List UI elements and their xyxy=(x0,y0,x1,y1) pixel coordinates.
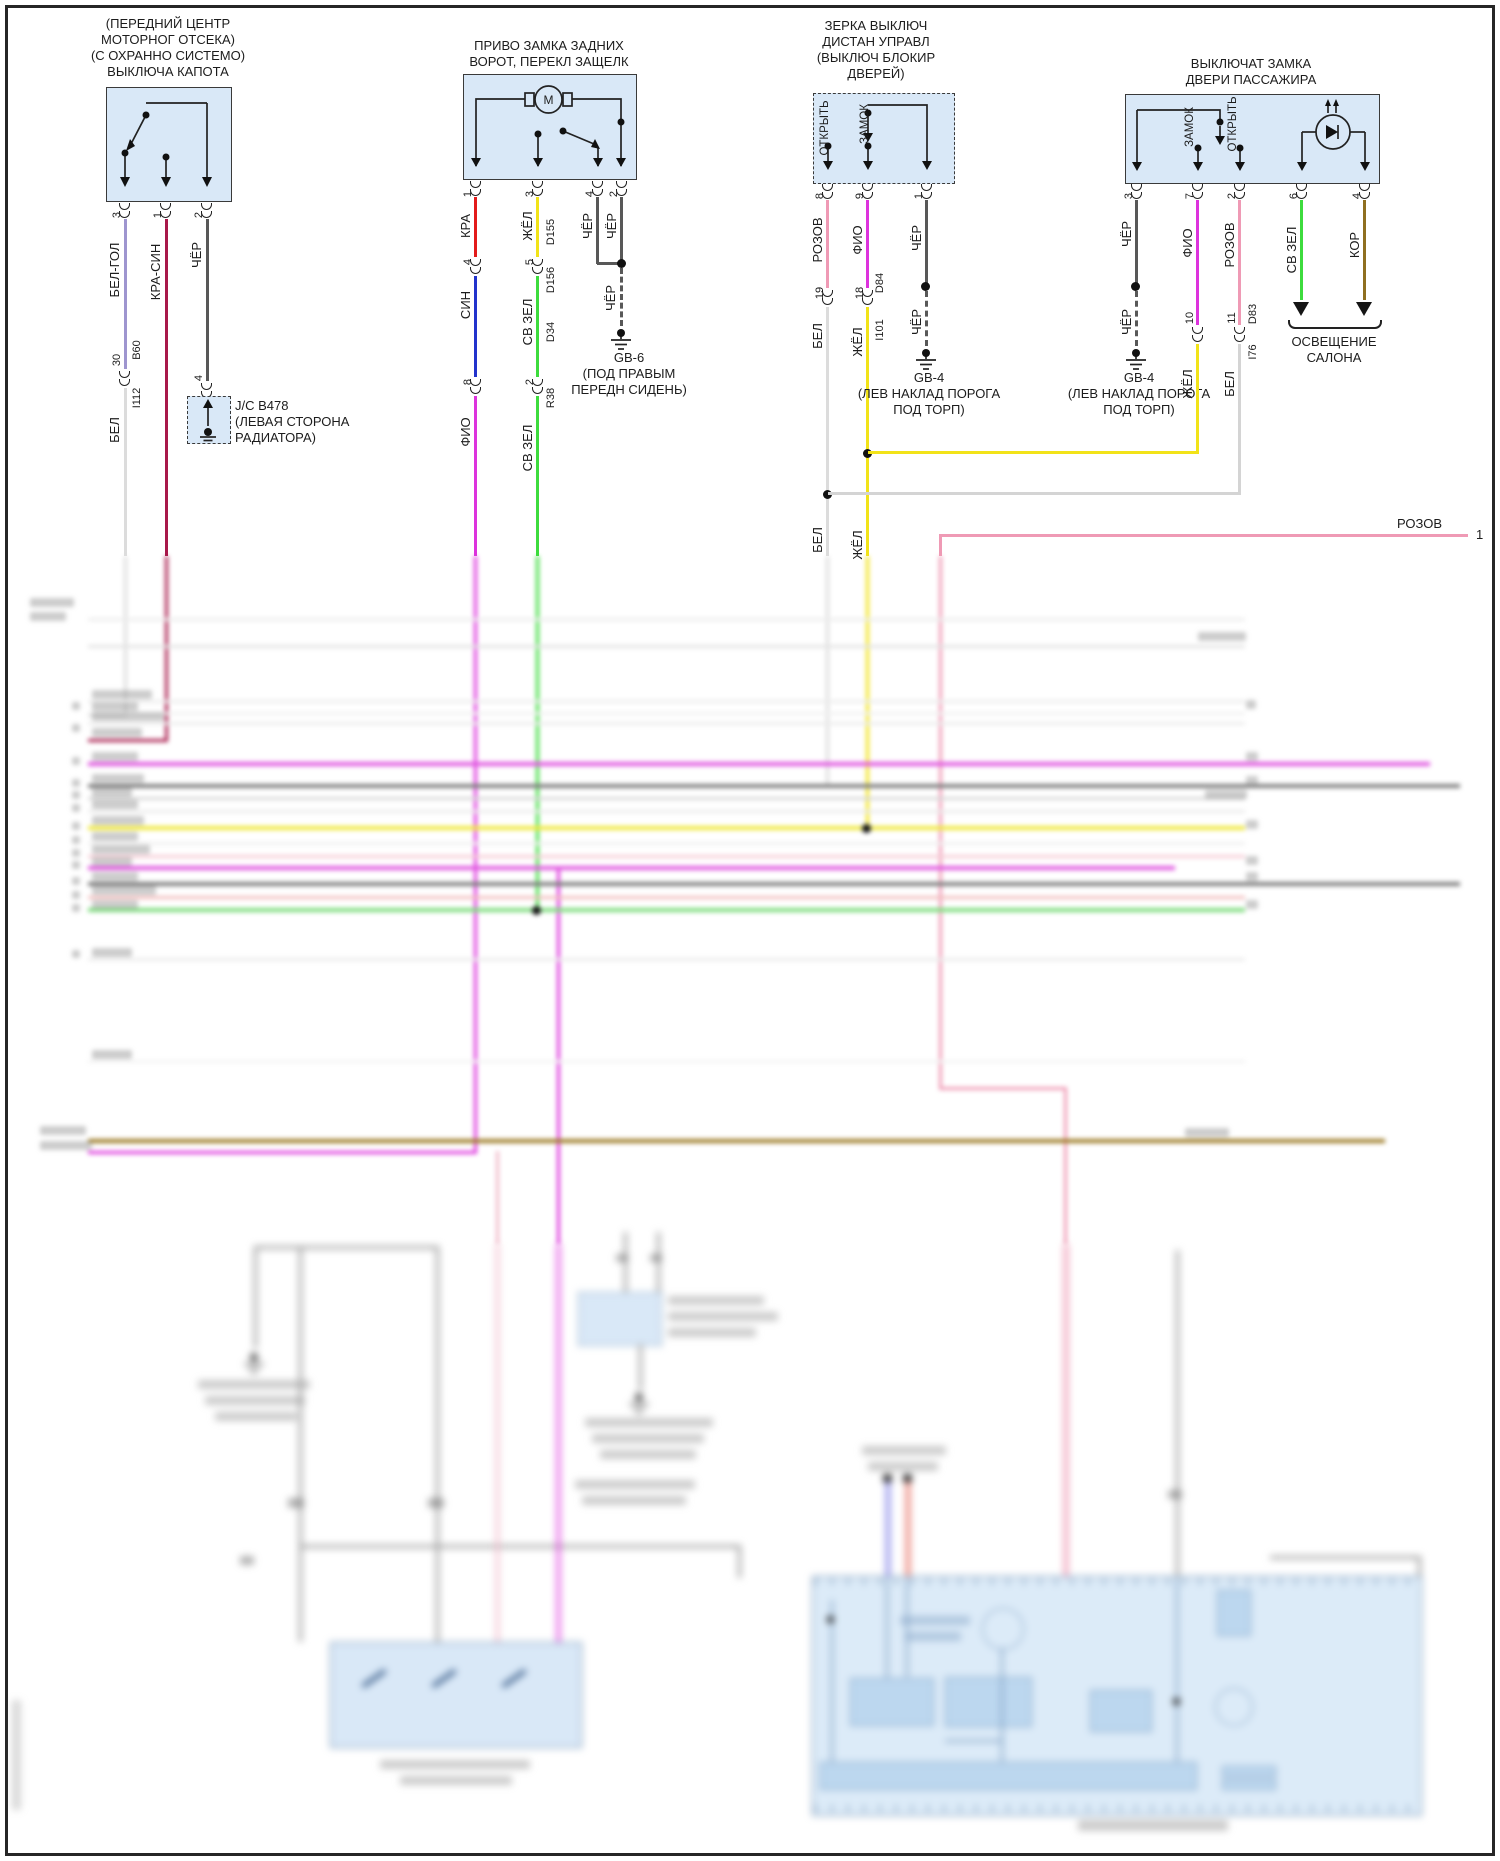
blurred-label xyxy=(1185,1128,1229,1137)
hood-switch-title: (ПЕРЕДНИЙ ЦЕНТР xyxy=(106,16,230,31)
wire-gray xyxy=(657,1232,660,1292)
wire-zhel-link xyxy=(868,451,1199,454)
wire-gray xyxy=(738,1545,741,1578)
ground-symbol xyxy=(240,1352,268,1378)
wire-label: КРА xyxy=(458,214,473,238)
wire-cher-dashed xyxy=(925,291,928,346)
liftgate-lock-symbol: M xyxy=(463,74,635,178)
wire-fio xyxy=(866,200,869,288)
contact-label: ОТКРЫТЬ xyxy=(1226,96,1241,151)
wire-gray xyxy=(1418,1556,1421,1578)
liftgate-lock-title: ВОРОТ, ПЕРЕКЛ ЗАЩЕЛК xyxy=(469,54,628,69)
wire-label: ЧЁР xyxy=(189,242,204,268)
wire-blue xyxy=(886,1482,890,1578)
connector-symbol xyxy=(1233,327,1247,343)
bus-line xyxy=(88,1060,1245,1063)
connector-id: D83 xyxy=(1246,304,1261,324)
blurred-label xyxy=(92,816,144,825)
mirror-switch-title: ДВЕРЕЙ) xyxy=(847,66,904,81)
wire-red xyxy=(906,1482,910,1578)
pin-number: 9 xyxy=(853,193,868,199)
bus-line xyxy=(88,700,1245,703)
blurred-label xyxy=(575,1480,695,1489)
pin-number: 4 xyxy=(1350,193,1365,199)
bus-line-sv-zel xyxy=(88,908,1245,912)
bus-line xyxy=(88,958,1245,961)
blurred-pin xyxy=(72,904,80,912)
wire-bel xyxy=(826,307,829,556)
wire-gray xyxy=(624,1232,627,1292)
blurred-label xyxy=(92,948,132,957)
wire-fio xyxy=(557,867,560,1244)
pin-number: 18 xyxy=(853,287,868,299)
bus-line xyxy=(88,896,1245,899)
module-internal-circle xyxy=(1215,1688,1253,1726)
blurred-label xyxy=(40,1126,86,1135)
wire-label: СИН xyxy=(458,291,473,319)
mirror-switch-symbol xyxy=(813,93,953,182)
wire-bel xyxy=(88,714,127,717)
bus-line xyxy=(88,855,1245,858)
bracket xyxy=(1288,320,1382,329)
wire-fio xyxy=(474,556,477,1154)
wire-sin xyxy=(474,276,477,377)
blurred-pin xyxy=(1246,776,1258,785)
bus-line-cher xyxy=(88,882,1460,886)
blurred-junction-block xyxy=(578,1292,662,1346)
contact-label: ОТКРЫТЬ xyxy=(818,100,833,155)
hood-switch-title: (С ОХРАННО СИСТЕМО) xyxy=(91,48,245,63)
module-pin-row xyxy=(815,1578,1415,1585)
junction-label: J/C B478 xyxy=(235,398,288,413)
blurred-label xyxy=(585,1418,713,1427)
wire-bel-gol xyxy=(124,219,127,369)
junction-dot xyxy=(903,1474,912,1483)
wire-label: ЧЁР xyxy=(909,225,924,251)
wire-bel xyxy=(826,556,829,786)
wire-bel xyxy=(1238,344,1241,493)
wire-label: ЖЁЛ xyxy=(850,327,865,356)
blurred-label xyxy=(92,788,132,797)
wire-rozov xyxy=(939,556,942,1090)
wire-label: СВ ЗЕЛ xyxy=(520,425,535,472)
pin-number: 11 xyxy=(1225,312,1240,323)
pin-number: 10 xyxy=(1183,312,1198,324)
bus-line xyxy=(88,797,1245,800)
junction-dot xyxy=(1131,282,1140,291)
module-wire xyxy=(906,1578,908,1677)
blurred-label xyxy=(92,752,138,761)
blurred-label xyxy=(92,886,156,895)
wire-pink xyxy=(496,1244,499,1644)
blurred-label xyxy=(92,900,138,909)
wire-label: КРА-СИН xyxy=(148,244,163,301)
bus-line xyxy=(88,712,1245,715)
wire-label: ФИО xyxy=(458,417,473,446)
wire-label: ЧЁР xyxy=(580,213,595,239)
wire-label: БЕЛ-ГОЛ xyxy=(107,243,122,298)
wire-bel xyxy=(124,388,127,556)
passenger-lock-symbol xyxy=(1125,94,1378,182)
wire-fio xyxy=(1196,200,1199,325)
wire-zhel xyxy=(866,307,869,556)
blurred-label xyxy=(905,1632,961,1641)
wire-rozov xyxy=(1064,1244,1068,1578)
wire-bel-link xyxy=(828,492,1241,495)
wire-zhel xyxy=(866,556,869,828)
blurred-label xyxy=(92,712,164,721)
blurred-pin xyxy=(72,779,80,787)
blurred-pin xyxy=(72,877,80,885)
connector-id: I76 xyxy=(1246,344,1261,359)
blurred-connector xyxy=(1168,1490,1182,1499)
blurred-switch-contact xyxy=(361,1668,387,1688)
blurred-connector xyxy=(650,1254,662,1262)
wire-cher-dashed xyxy=(620,268,623,326)
blurred-pin xyxy=(72,791,80,799)
bus-line xyxy=(88,810,1245,813)
wire-rozov xyxy=(939,536,942,556)
bus-pin-number: 1 xyxy=(1476,527,1483,542)
splice-pin: 30 xyxy=(110,354,125,366)
mirror-switch-title: (ВЫКЛЮЧ БЛОКИР xyxy=(817,50,935,65)
wire-kra-sin xyxy=(165,556,168,742)
module-internal-box xyxy=(1217,1590,1251,1636)
blurred-pin xyxy=(72,891,80,899)
wire-label: ЧЁР xyxy=(909,309,924,335)
blurred-pin xyxy=(72,804,80,812)
wire-label: БЕЛ xyxy=(810,323,825,349)
wire-label: СВ ЗЕЛ xyxy=(520,299,535,346)
module-internal-bar xyxy=(820,1762,1197,1790)
wire-label: КОР xyxy=(1347,232,1362,258)
blurred-switch-contact xyxy=(501,1668,527,1688)
wire-label: ЖЁЛ xyxy=(1180,369,1195,398)
blurred-label xyxy=(582,1496,686,1505)
blurred-label xyxy=(1205,790,1247,799)
blurred-switch-contact xyxy=(431,1668,457,1688)
hood-switch-symbol xyxy=(106,87,230,200)
blurred-label xyxy=(92,857,132,866)
wire-label: ЧЁР xyxy=(603,285,618,311)
wire-cher xyxy=(596,197,599,264)
blurred-pin xyxy=(72,849,80,857)
pin-number: 2 xyxy=(1225,193,1240,199)
wire-gray xyxy=(436,1246,439,1642)
wire-label: СВ ЗЕЛ xyxy=(1284,227,1299,274)
pin-number: 4 xyxy=(461,259,476,265)
blurred-pin xyxy=(72,861,80,869)
pin-number: 6 xyxy=(1287,193,1302,199)
liftgate-lock-title: ПРИВО ЗАМКА ЗАДНИХ xyxy=(474,38,624,53)
module-internal-box xyxy=(945,1677,1032,1727)
blurred-pin xyxy=(1246,856,1258,865)
connector-id: B60 xyxy=(130,340,145,360)
wire-label: ЖЁЛ xyxy=(850,530,865,559)
bus-line xyxy=(88,842,1245,845)
ground-label: GB-4 xyxy=(914,370,944,385)
wire-label: ФИО xyxy=(1180,228,1195,257)
junction-ground-symbol xyxy=(187,396,229,442)
blurred-label xyxy=(30,598,74,607)
page-border xyxy=(5,5,1495,1856)
blurred-connector xyxy=(428,1498,444,1508)
wire-kra xyxy=(474,197,477,257)
pin-number: 2 xyxy=(523,379,538,385)
ground-label: ПЕРЕДН СИДЕНЬ) xyxy=(571,382,687,397)
blurred-label xyxy=(30,612,66,621)
bus-line-kor xyxy=(88,1139,1385,1143)
blurred-label xyxy=(1198,632,1246,641)
blurred-label xyxy=(40,1141,92,1150)
blurred-caption xyxy=(1078,1820,1228,1831)
wire-rozov xyxy=(826,200,829,288)
blurred-label xyxy=(592,1434,704,1443)
pin-number: 2 xyxy=(192,212,207,218)
module-internal-circle xyxy=(982,1608,1024,1650)
contact-label: ЗАМОК xyxy=(1183,107,1198,147)
ground-label: ПОД ТОРП) xyxy=(1103,402,1174,417)
connector-id: R38 xyxy=(544,388,559,408)
wire-fio xyxy=(88,1151,477,1154)
connector-id: D84 xyxy=(873,273,888,293)
blurred-label xyxy=(92,702,138,711)
junction-label: (ЛЕВАЯ СТОРОНА xyxy=(235,414,349,429)
wire-fio xyxy=(557,1244,560,1644)
wire-cher-dashed xyxy=(1135,291,1138,346)
wire-label: ЧЁР xyxy=(1119,221,1134,247)
interior-lighting-label: ОСВЕЩЕНИЕ xyxy=(1291,334,1376,349)
passenger-lock-title: ДВЕРИ ПАССАЖИРА xyxy=(1186,72,1316,87)
wire-gray xyxy=(639,1344,642,1390)
blurred-label xyxy=(215,1412,297,1421)
blurred-pin xyxy=(72,950,80,958)
wire-pink xyxy=(496,1151,499,1244)
wire-kor xyxy=(1363,200,1366,300)
mirror-switch-title: ДИСТАН УПРАВЛ xyxy=(822,34,929,49)
blurred-label xyxy=(92,690,152,699)
blurred-label xyxy=(862,1446,946,1455)
module-internal-bar xyxy=(1222,1766,1276,1777)
wire-gray xyxy=(299,1545,740,1548)
blurred-pin xyxy=(72,822,80,830)
module-wire xyxy=(886,1578,888,1678)
bus-line xyxy=(88,618,1245,621)
junction-dot xyxy=(532,906,541,915)
junction-dot xyxy=(1173,1698,1180,1705)
junction-dot xyxy=(921,282,930,291)
blurred-label xyxy=(198,1380,310,1389)
connector-id: D155 xyxy=(544,219,559,245)
wire-rozov xyxy=(939,1087,1067,1090)
blurred-pin xyxy=(1246,820,1258,829)
blurred-label xyxy=(92,728,142,737)
junction-dot xyxy=(827,1616,834,1623)
blurred-label xyxy=(668,1312,778,1321)
connector-id: D34 xyxy=(544,322,559,342)
hood-switch-title: МОТОРНОГ ОТСЕКА) xyxy=(101,32,235,47)
hood-switch-title: ВЫКЛЮЧА КАПОТА xyxy=(107,64,229,79)
module-pin-row xyxy=(815,1805,1415,1812)
wire-kra-sin xyxy=(88,739,168,742)
pin-number: 8 xyxy=(461,379,476,385)
wire-cher xyxy=(925,200,928,286)
blurred-pin xyxy=(72,836,80,844)
pin-number: 8 xyxy=(813,193,828,199)
module-internal-bar xyxy=(1222,1779,1276,1790)
wire-sv-zel xyxy=(536,556,539,910)
module-wire xyxy=(831,1600,833,1762)
bus-line-fio xyxy=(88,762,1430,766)
wire-bel xyxy=(124,556,127,716)
blurred-pin xyxy=(1246,700,1256,709)
blurred-switch-block xyxy=(330,1642,582,1748)
module-internal-box xyxy=(850,1678,934,1726)
pin-number: 4 xyxy=(192,375,207,381)
wire-label: РОЗОВ xyxy=(1222,223,1237,268)
blurred-label xyxy=(205,1396,305,1405)
interior-lighting-label: САЛОНА xyxy=(1307,350,1362,365)
wire-zhel xyxy=(536,197,539,257)
mirror-switch-title: ЗЕРКА ВЫКЛЮЧ xyxy=(825,18,928,33)
wiring-diagram-page: (ПЕРЕДНИЙ ЦЕНТР МОТОРНОГ ОТСЕКА) (С ОХРА… xyxy=(0,0,1500,1861)
junction-label: РАДИАТОРА) xyxy=(235,430,316,445)
wire-zhel xyxy=(1196,344,1199,452)
blurred-pin xyxy=(1246,752,1258,761)
wire-cher xyxy=(1135,200,1138,286)
ground-label: GB-4 xyxy=(1124,370,1154,385)
blurred-pin xyxy=(1246,900,1258,909)
bus-line-cher xyxy=(88,784,1460,788)
ground-label: ПОД ТОРП) xyxy=(893,402,964,417)
wire-label: ЧЁР xyxy=(1119,309,1134,335)
blurred-label xyxy=(600,1450,696,1459)
blurred-pin xyxy=(1246,872,1258,881)
junction-dot xyxy=(862,824,871,833)
bus-line-fio xyxy=(88,866,1175,870)
wire-gray xyxy=(254,1246,439,1249)
connector-id: I101 xyxy=(873,319,888,340)
wire-label: ФИО xyxy=(850,225,865,254)
wire-sv-zel xyxy=(536,396,539,556)
ground-label: (ПОД ПРАВЫМ xyxy=(583,366,676,381)
wire-label: ЧЁР xyxy=(604,213,619,239)
bus-line-zhel xyxy=(88,826,1245,830)
blurred-label xyxy=(92,845,150,854)
junction-dot xyxy=(617,259,626,268)
blurred-connector xyxy=(240,1556,254,1565)
pin-number: 3 xyxy=(1122,193,1137,199)
arrow-to-interior-lighting xyxy=(1356,302,1372,316)
bus-line xyxy=(88,645,1245,648)
blurred-label xyxy=(92,832,138,841)
wire-rozov xyxy=(1064,1087,1067,1244)
pin-number: 19 xyxy=(813,287,828,299)
bus-line xyxy=(88,722,1245,725)
blurred-label xyxy=(868,1462,938,1471)
wire-gray xyxy=(1176,1250,1179,1578)
pin-number: 3 xyxy=(110,212,125,218)
blurred-label xyxy=(92,800,138,809)
blurred-bottom-section xyxy=(0,0,1500,1861)
module-wire xyxy=(945,1740,1003,1742)
blurred-label xyxy=(668,1328,756,1337)
wire-rozov-bus xyxy=(939,534,1468,537)
watermark xyxy=(12,1700,21,1810)
wire-gray xyxy=(299,1246,302,1642)
blurred-caption xyxy=(400,1776,512,1785)
blurred-pin xyxy=(72,757,80,765)
connector-id: D156 xyxy=(544,267,559,293)
svg-text:M: M xyxy=(544,93,554,107)
module-internal-box xyxy=(1090,1690,1152,1732)
blurred-label xyxy=(92,1050,132,1059)
arrow-to-interior-lighting xyxy=(1293,302,1309,316)
module-wire xyxy=(1176,1578,1178,1762)
wire-gray xyxy=(1270,1556,1420,1559)
wire-fio xyxy=(474,396,477,556)
ground-symbol xyxy=(625,1392,653,1418)
blurred-label xyxy=(900,1616,970,1625)
wire-label: БЕЛ xyxy=(810,527,825,553)
wire-sv-zel xyxy=(536,276,539,377)
wire-label: БЕЛ xyxy=(107,417,122,443)
blurred-caption xyxy=(380,1760,530,1769)
wire-rozov xyxy=(1238,200,1241,325)
blurred-pin xyxy=(72,702,80,710)
wire-label: РОЗОВ xyxy=(810,218,825,263)
blurred-pin xyxy=(72,724,80,732)
contact-label: ЗАМОК xyxy=(858,104,873,144)
pin-number: 1 xyxy=(151,212,166,218)
module-wire xyxy=(1001,1648,1003,1762)
junction-dot xyxy=(883,1474,892,1483)
blurred-module-block xyxy=(812,1576,1422,1816)
pin-number: 7 xyxy=(1183,193,1198,199)
bus-wire-label: РОЗОВ xyxy=(1397,516,1442,531)
pin-number: 5 xyxy=(523,259,538,265)
wire-cher xyxy=(620,197,623,264)
blurred-connector xyxy=(616,1254,628,1262)
blurred-label xyxy=(92,872,138,881)
wire-gray xyxy=(254,1246,257,1348)
ground-label: (ЛЕВ НАКЛАД ПОРОГА xyxy=(858,386,1000,401)
blurred-connector xyxy=(288,1498,304,1508)
connector-id: I112 xyxy=(130,388,145,409)
passenger-lock-title: ВЫКЛЮЧАТ ЗАМКА xyxy=(1191,56,1311,71)
blurred-middle-section xyxy=(0,0,1500,1861)
wire-sv-zel xyxy=(1300,200,1303,300)
pin-number: 1 xyxy=(912,193,927,199)
wire-kra-sin xyxy=(165,219,168,556)
connector-symbol xyxy=(118,371,132,387)
wire-label: БЕЛ xyxy=(1222,371,1237,397)
connector-symbol xyxy=(1191,327,1205,343)
wire-label: ЖЁЛ xyxy=(520,211,535,240)
blurred-label xyxy=(92,774,144,783)
wire-cher xyxy=(206,219,209,381)
ground-label: GB-6 xyxy=(614,350,644,365)
blurred-label xyxy=(668,1296,764,1305)
